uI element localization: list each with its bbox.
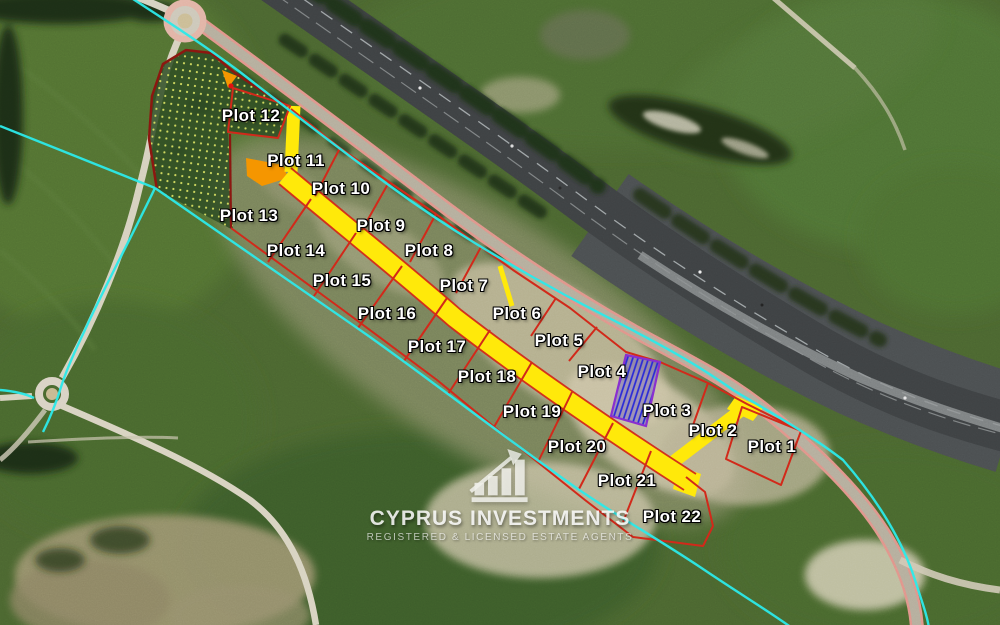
satellite-basemap [0, 0, 1000, 625]
satellite-plot-map: Plot 1Plot 2Plot 3Plot 4Plot 5Plot 6Plot… [0, 0, 1000, 625]
